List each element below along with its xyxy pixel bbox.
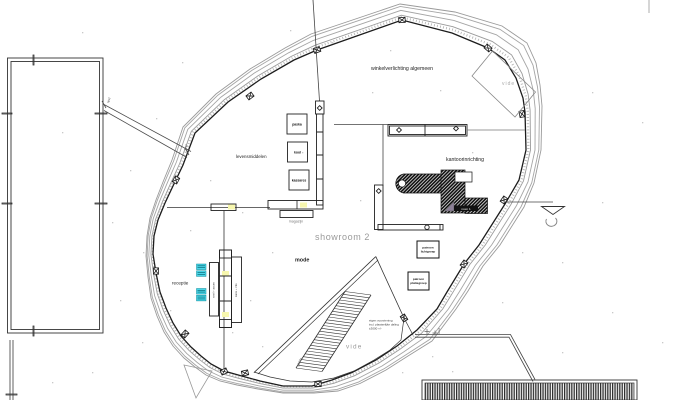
svg-text:vide: vide [502,81,515,87]
svg-text:±3000 +/-: ±3000 +/- [369,327,382,331]
svg-text:vide: vide [346,344,363,351]
svg-text:kass + info: kass + info [234,283,238,297]
svg-text:kool: kool [294,151,301,155]
svg-text:plattegroep: plattegroep [410,281,427,285]
svg-text:winkelverlichting algemeen: winkelverlichting algemeen [371,66,433,72]
svg-text:kassares: kassares [292,179,307,183]
svg-text:lichtgroep: lichtgroep [421,250,436,254]
svg-text:huisd: huisd [437,327,441,335]
svg-text:paska: paska [292,123,302,127]
svg-text:mode: mode [295,258,309,264]
svg-text:magazijn: magazijn [289,220,303,224]
svg-text:room 1: room 1 [461,207,471,211]
svg-text:kantoorinrichting: kantoorinrichting [446,157,484,163]
svg-text:receptie: receptie [172,281,189,286]
svg-text:showroom 2: showroom 2 [315,232,370,242]
svg-text:levensmiddelen: levensmiddelen [236,154,267,159]
svg-text:snel + acces: snel + acces [212,282,216,298]
